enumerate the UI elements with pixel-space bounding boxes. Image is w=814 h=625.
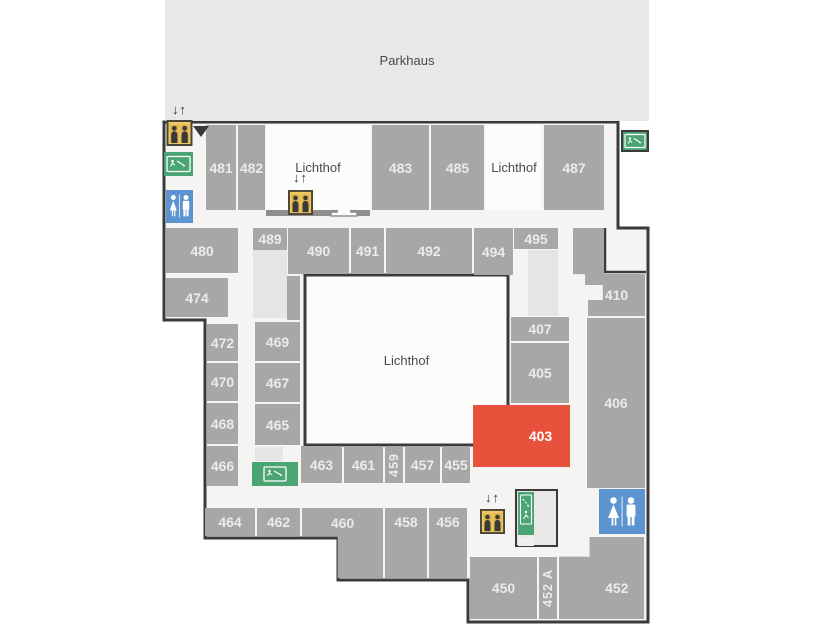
- room-406[interactable]: 406: [587, 318, 645, 488]
- parkhaus-label: Parkhaus: [380, 53, 435, 68]
- room-470[interactable]: 470: [207, 363, 238, 401]
- floor-plan: Parkhaus Lichthof Lichthof Lichthof 481 …: [0, 0, 814, 625]
- room-405[interactable]: 405: [511, 343, 569, 403]
- room-462[interactable]: 462: [257, 508, 300, 536]
- room-482[interactable]: 482: [238, 125, 265, 210]
- room-472[interactable]: 472: [207, 324, 238, 361]
- room-494[interactable]: 494: [474, 228, 513, 275]
- room-469-extension: [287, 276, 300, 320]
- room-487[interactable]: 487: [544, 125, 604, 210]
- elevator-icon: [480, 508, 505, 535]
- area-parkhaus: Parkhaus: [165, 0, 649, 121]
- room-403-highlighted[interactable]: 403: [473, 405, 570, 467]
- room-457[interactable]: 457: [405, 446, 440, 483]
- room-407[interactable]: 407: [511, 317, 569, 341]
- room-465[interactable]: 465: [255, 404, 300, 445]
- room-459[interactable]: 459: [385, 446, 403, 483]
- room-455[interactable]: 455: [442, 446, 470, 483]
- emergency-exit-icon: [621, 130, 649, 152]
- emergency-exit-down-icon: [518, 492, 534, 535]
- stairwell-strip-right: [528, 250, 558, 316]
- room-481[interactable]: 481: [206, 125, 236, 210]
- room-489[interactable]: 489: [253, 228, 287, 250]
- stairwell-strip-left: [253, 250, 287, 318]
- room-490[interactable]: 490: [288, 228, 349, 274]
- room-464[interactable]: 464: [205, 508, 255, 536]
- room-463[interactable]: 463: [301, 446, 342, 483]
- room-480[interactable]: 480: [166, 228, 238, 273]
- room-483[interactable]: 483: [372, 125, 429, 210]
- entrance-marker-icon: [193, 126, 209, 137]
- emergency-exit-icon: [252, 462, 298, 486]
- wc-icon: [166, 190, 193, 223]
- stair-landing: [518, 537, 534, 546]
- room-491[interactable]: 491: [351, 228, 384, 274]
- room-452a[interactable]: 452 A: [539, 557, 557, 619]
- room-492[interactable]: 492: [386, 228, 472, 274]
- emergency-exit-icon: [164, 152, 193, 176]
- room-466[interactable]: 466: [207, 446, 238, 486]
- wc-icon: [599, 489, 645, 534]
- stairwell-box: [515, 489, 558, 547]
- room-474[interactable]: 474: [166, 278, 228, 317]
- elevator-icon: [166, 120, 193, 146]
- room-458[interactable]: 458: [385, 508, 427, 578]
- room-469[interactable]: 469: [255, 322, 300, 361]
- room-461[interactable]: 461: [344, 446, 383, 483]
- stair-landing-small: [255, 447, 283, 461]
- elevator-icon: [288, 189, 313, 216]
- room-456[interactable]: 456: [429, 508, 467, 578]
- room-495[interactable]: 495: [514, 228, 558, 249]
- room-450[interactable]: 450: [470, 557, 537, 619]
- room-468[interactable]: 468: [207, 403, 238, 444]
- room-467[interactable]: 467: [255, 363, 300, 402]
- room-485[interactable]: 485: [431, 125, 484, 210]
